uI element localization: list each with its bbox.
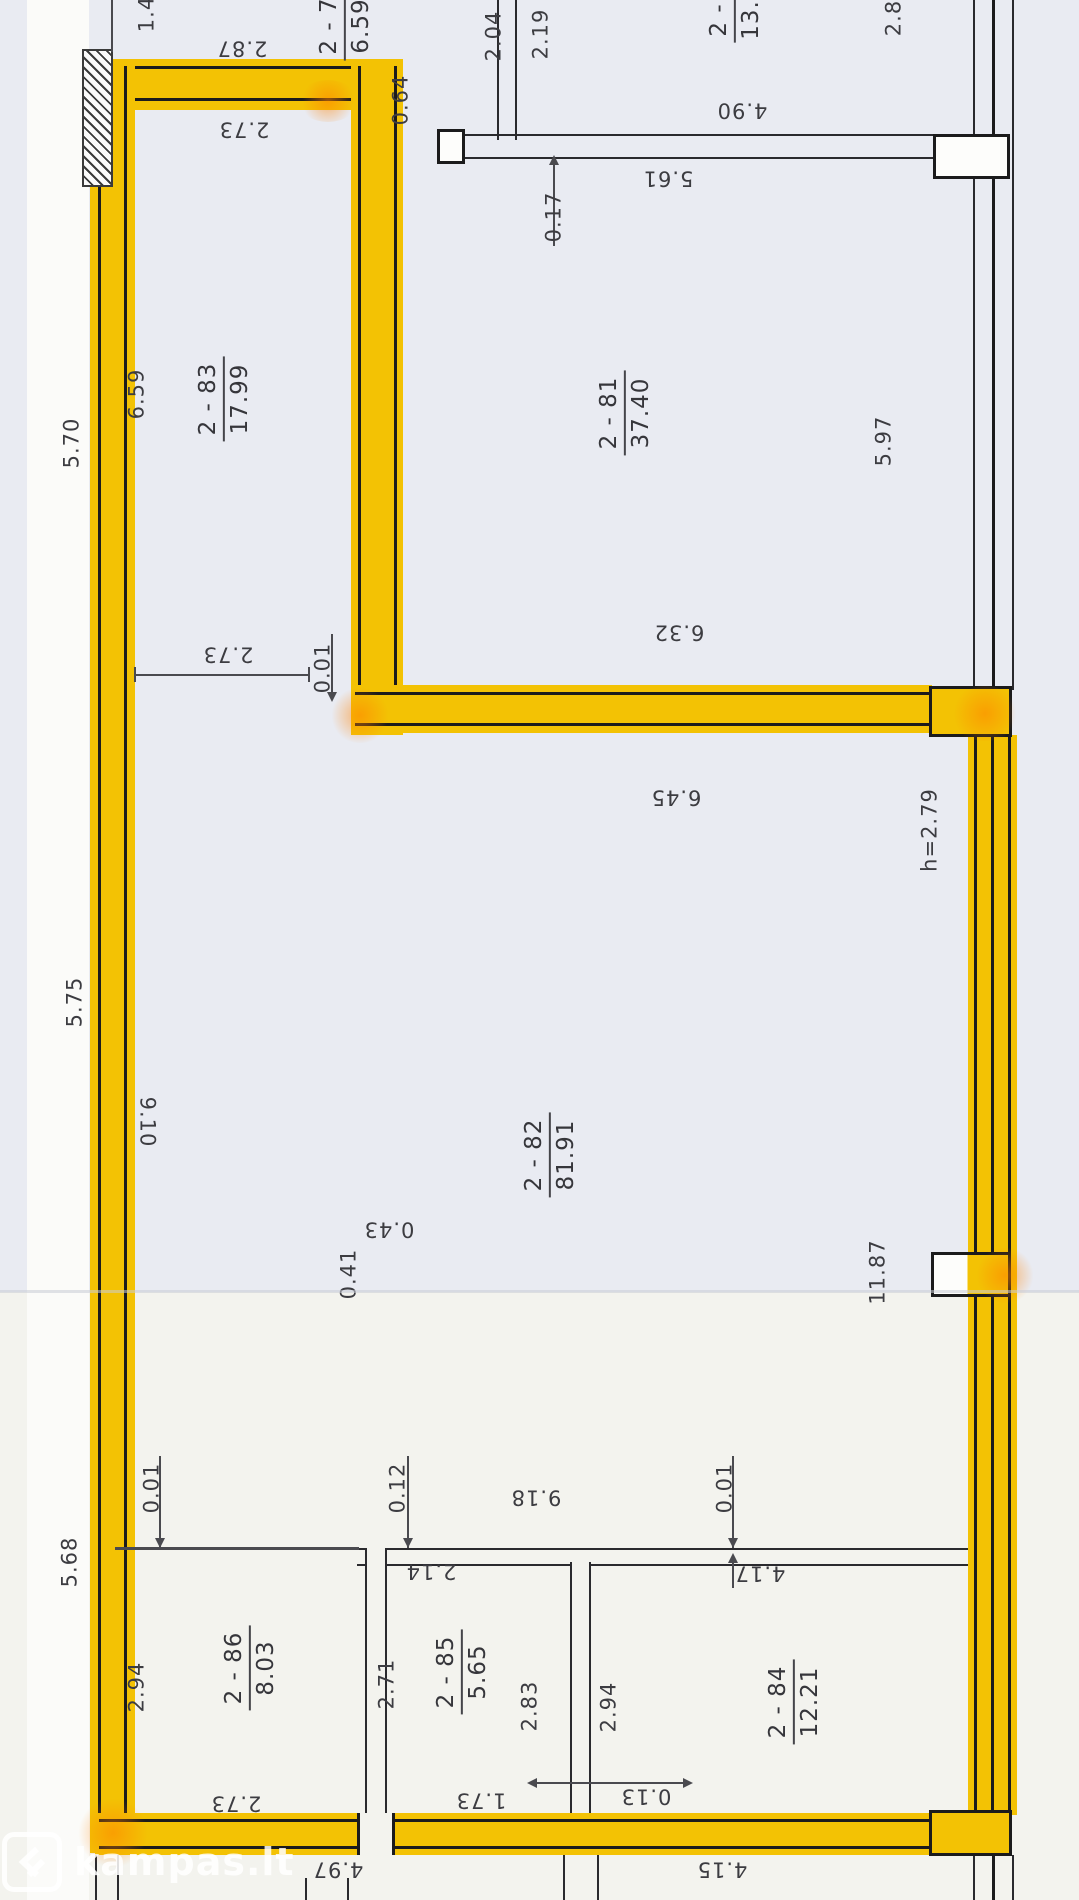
dim-label-0-01-b: 0.01 [142, 1463, 163, 1514]
kampas-logo-icon [2, 1832, 62, 1892]
dim-label-5-97: 5.97 [874, 416, 895, 467]
room-label-2-86: 2 - 86 8.03 [222, 1626, 278, 1711]
dim-label-0-13: 0.13 [621, 1786, 672, 1807]
wall-thin-upper-right [973, 0, 1014, 690]
room-number: 2 - 85 [434, 1630, 463, 1715]
room-number: 2 - 81 [597, 371, 626, 456]
highlighter-smudge [298, 80, 358, 122]
dim-label-0-12: 0.12 [388, 1463, 409, 1514]
watermark-text: kampas.lt [74, 1840, 295, 1884]
dim-label-2-94-a: 2.94 [127, 1662, 148, 1713]
room-area: 13. [736, 0, 763, 40]
wall-thin-upper [439, 134, 935, 159]
dim-label-0-01-a: 0.01 [313, 643, 334, 694]
dim-label-2-14: 2.14 [406, 1561, 457, 1582]
fold-crease [0, 1290, 1079, 1293]
dim-label-5-68: 5.68 [60, 1537, 81, 1588]
doorway-bottom-wall [357, 1813, 395, 1855]
dim-label-0-43: 0.43 [364, 1219, 415, 1240]
room-number: 2 - 7 [317, 0, 346, 61]
floor-plan-scan: 1.4 0.64 2.04 2.19 0.17 2.8 5.97 5.70 6.… [0, 0, 1079, 1900]
dim-arrow [155, 1538, 165, 1548]
wall-junction-column-bottom [929, 1810, 1012, 1856]
wall-mid-horizontal [351, 685, 932, 733]
dim-label-2-19: 2.19 [531, 9, 552, 60]
dim-label-2-73-a: 2.73 [219, 119, 270, 140]
paper-margin [27, 0, 89, 1900]
dim-label-2-04: 2.04 [484, 11, 505, 62]
dim-label-0-01-c: 0.01 [715, 1463, 736, 1514]
highlighter-smudge [950, 686, 1020, 741]
room-area: 5.65 [463, 1644, 490, 1699]
wall-left [90, 59, 135, 1853]
dim-label-0-17: 0.17 [544, 192, 565, 243]
room-number: 2 - 83 [196, 357, 225, 442]
room-area: 6.59 [346, 0, 373, 54]
dim-label-6-32: 6.32 [654, 622, 705, 643]
dim-label-0-64: 0.64 [391, 75, 412, 126]
room-area: 81.91 [551, 1120, 578, 1191]
room-number: 2 - 82 [522, 1113, 551, 1198]
dim-tick [134, 667, 136, 682]
dim-label-2-8: 2.8 [884, 0, 905, 36]
dim-label-5-75: 5.75 [65, 977, 86, 1028]
wall-stub-bottom-c [563, 1855, 599, 1900]
room-label-top-small: 2 - 7 6.59 [317, 0, 373, 61]
room-label-2-81: 2 - 81 37.40 [597, 371, 653, 456]
dim-label-4-90: 4.90 [717, 100, 768, 121]
wall-divider-85-84 [570, 1562, 591, 1813]
dim-arrow [728, 1538, 738, 1548]
dim-label-1-4: 1.4 [137, 0, 158, 32]
window-hatch-symbol [82, 49, 113, 187]
dim-label-11-87: 11.87 [868, 1239, 889, 1304]
dim-label-5-70: 5.70 [62, 418, 83, 469]
dim-label-2-83-w: 2.83 [520, 1681, 541, 1732]
watermark: kampas.lt [2, 1832, 295, 1892]
dim-label-2-87: 2.87 [217, 38, 268, 59]
room-label-2-84: 2 - 84 12.21 [766, 1660, 822, 1745]
dim-label-9-18: 9.18 [511, 1487, 562, 1508]
dim-label-height-2-79: h=2.79 [920, 788, 941, 872]
room-label-2-82: 2 - 82 81.91 [522, 1113, 578, 1198]
room-label-top-right: 2 - 13. [707, 0, 763, 43]
room-label-2-85: 2 - 85 5.65 [434, 1630, 490, 1715]
room-number: 2 - 84 [766, 1660, 795, 1745]
room-label-2-83: 2 - 83 17.99 [196, 357, 252, 442]
dim-line [111, 0, 113, 52]
dim-line [135, 674, 310, 676]
dim-label-1-73: 1.73 [456, 1790, 507, 1811]
dim-label-4-17: 4.17 [735, 1563, 786, 1584]
column-upper-right [933, 134, 1010, 179]
room-number: 2 - 86 [222, 1626, 251, 1711]
dim-label-6-45: 6.45 [651, 787, 702, 808]
wall-room83-right [351, 59, 403, 735]
dim-label-9-10: 9.10 [137, 1097, 158, 1148]
room-area: 17.99 [225, 364, 252, 435]
room-area: 8.03 [251, 1640, 278, 1695]
highlighter-smudge [975, 1248, 1035, 1303]
dim-arrow [549, 155, 559, 165]
dim-label-2-71: 2.71 [377, 1659, 398, 1710]
dim-label-6-59: 6.59 [127, 369, 148, 420]
dim-arrow [683, 1778, 693, 1788]
room-area: 12.21 [795, 1667, 822, 1738]
dim-label-4-15: 4.15 [697, 1859, 748, 1880]
dim-arrow [327, 692, 337, 702]
dim-label-5-61: 5.61 [643, 168, 694, 189]
highlighter-smudge [330, 688, 390, 743]
dim-arrow [403, 1538, 413, 1548]
dim-arrow [527, 1778, 537, 1788]
room-area: 37.40 [626, 378, 653, 449]
wall-thin-bottom-right [973, 1855, 1014, 1900]
dim-label-2-73-b: 2.73 [203, 644, 254, 665]
door-post [437, 129, 465, 164]
room-number: 2 - [707, 0, 736, 43]
dim-label-4-97: 4.97 [313, 1859, 364, 1880]
dim-label-2-73-c: 2.73 [211, 1793, 262, 1814]
dim-label-2-94-b: 2.94 [599, 1682, 620, 1733]
dim-chain-line [115, 1547, 359, 1550]
paper-lower-zone [0, 1292, 1079, 1900]
